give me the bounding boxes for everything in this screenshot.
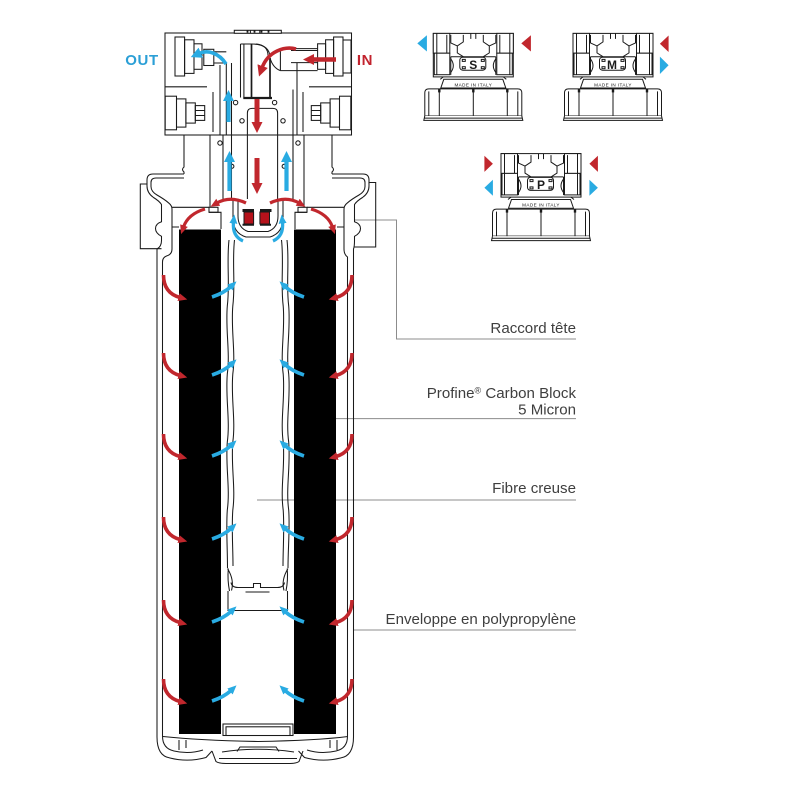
svg-text:MADE IN ITALY: MADE IN ITALY — [454, 82, 492, 87]
svg-text:IN: IN — [357, 52, 373, 69]
svg-text:Profine® Carbon Block: Profine® Carbon Block — [427, 385, 577, 402]
svg-text:MADE IN ITALY: MADE IN ITALY — [522, 203, 560, 208]
svg-text:P: P — [537, 178, 545, 192]
svg-text:OUT: OUT — [125, 52, 158, 69]
svg-text:Fibre creuse: Fibre creuse — [492, 480, 576, 497]
svg-text:Enveloppe en polypropylène: Enveloppe en polypropylène — [386, 611, 577, 628]
svg-text:MADE IN ITALY: MADE IN ITALY — [594, 82, 632, 87]
svg-text:S: S — [469, 58, 477, 72]
svg-text:M: M — [607, 58, 617, 72]
svg-text:Raccord tête: Raccord tête — [490, 320, 576, 337]
svg-text:5 Micron: 5 Micron — [518, 402, 576, 419]
